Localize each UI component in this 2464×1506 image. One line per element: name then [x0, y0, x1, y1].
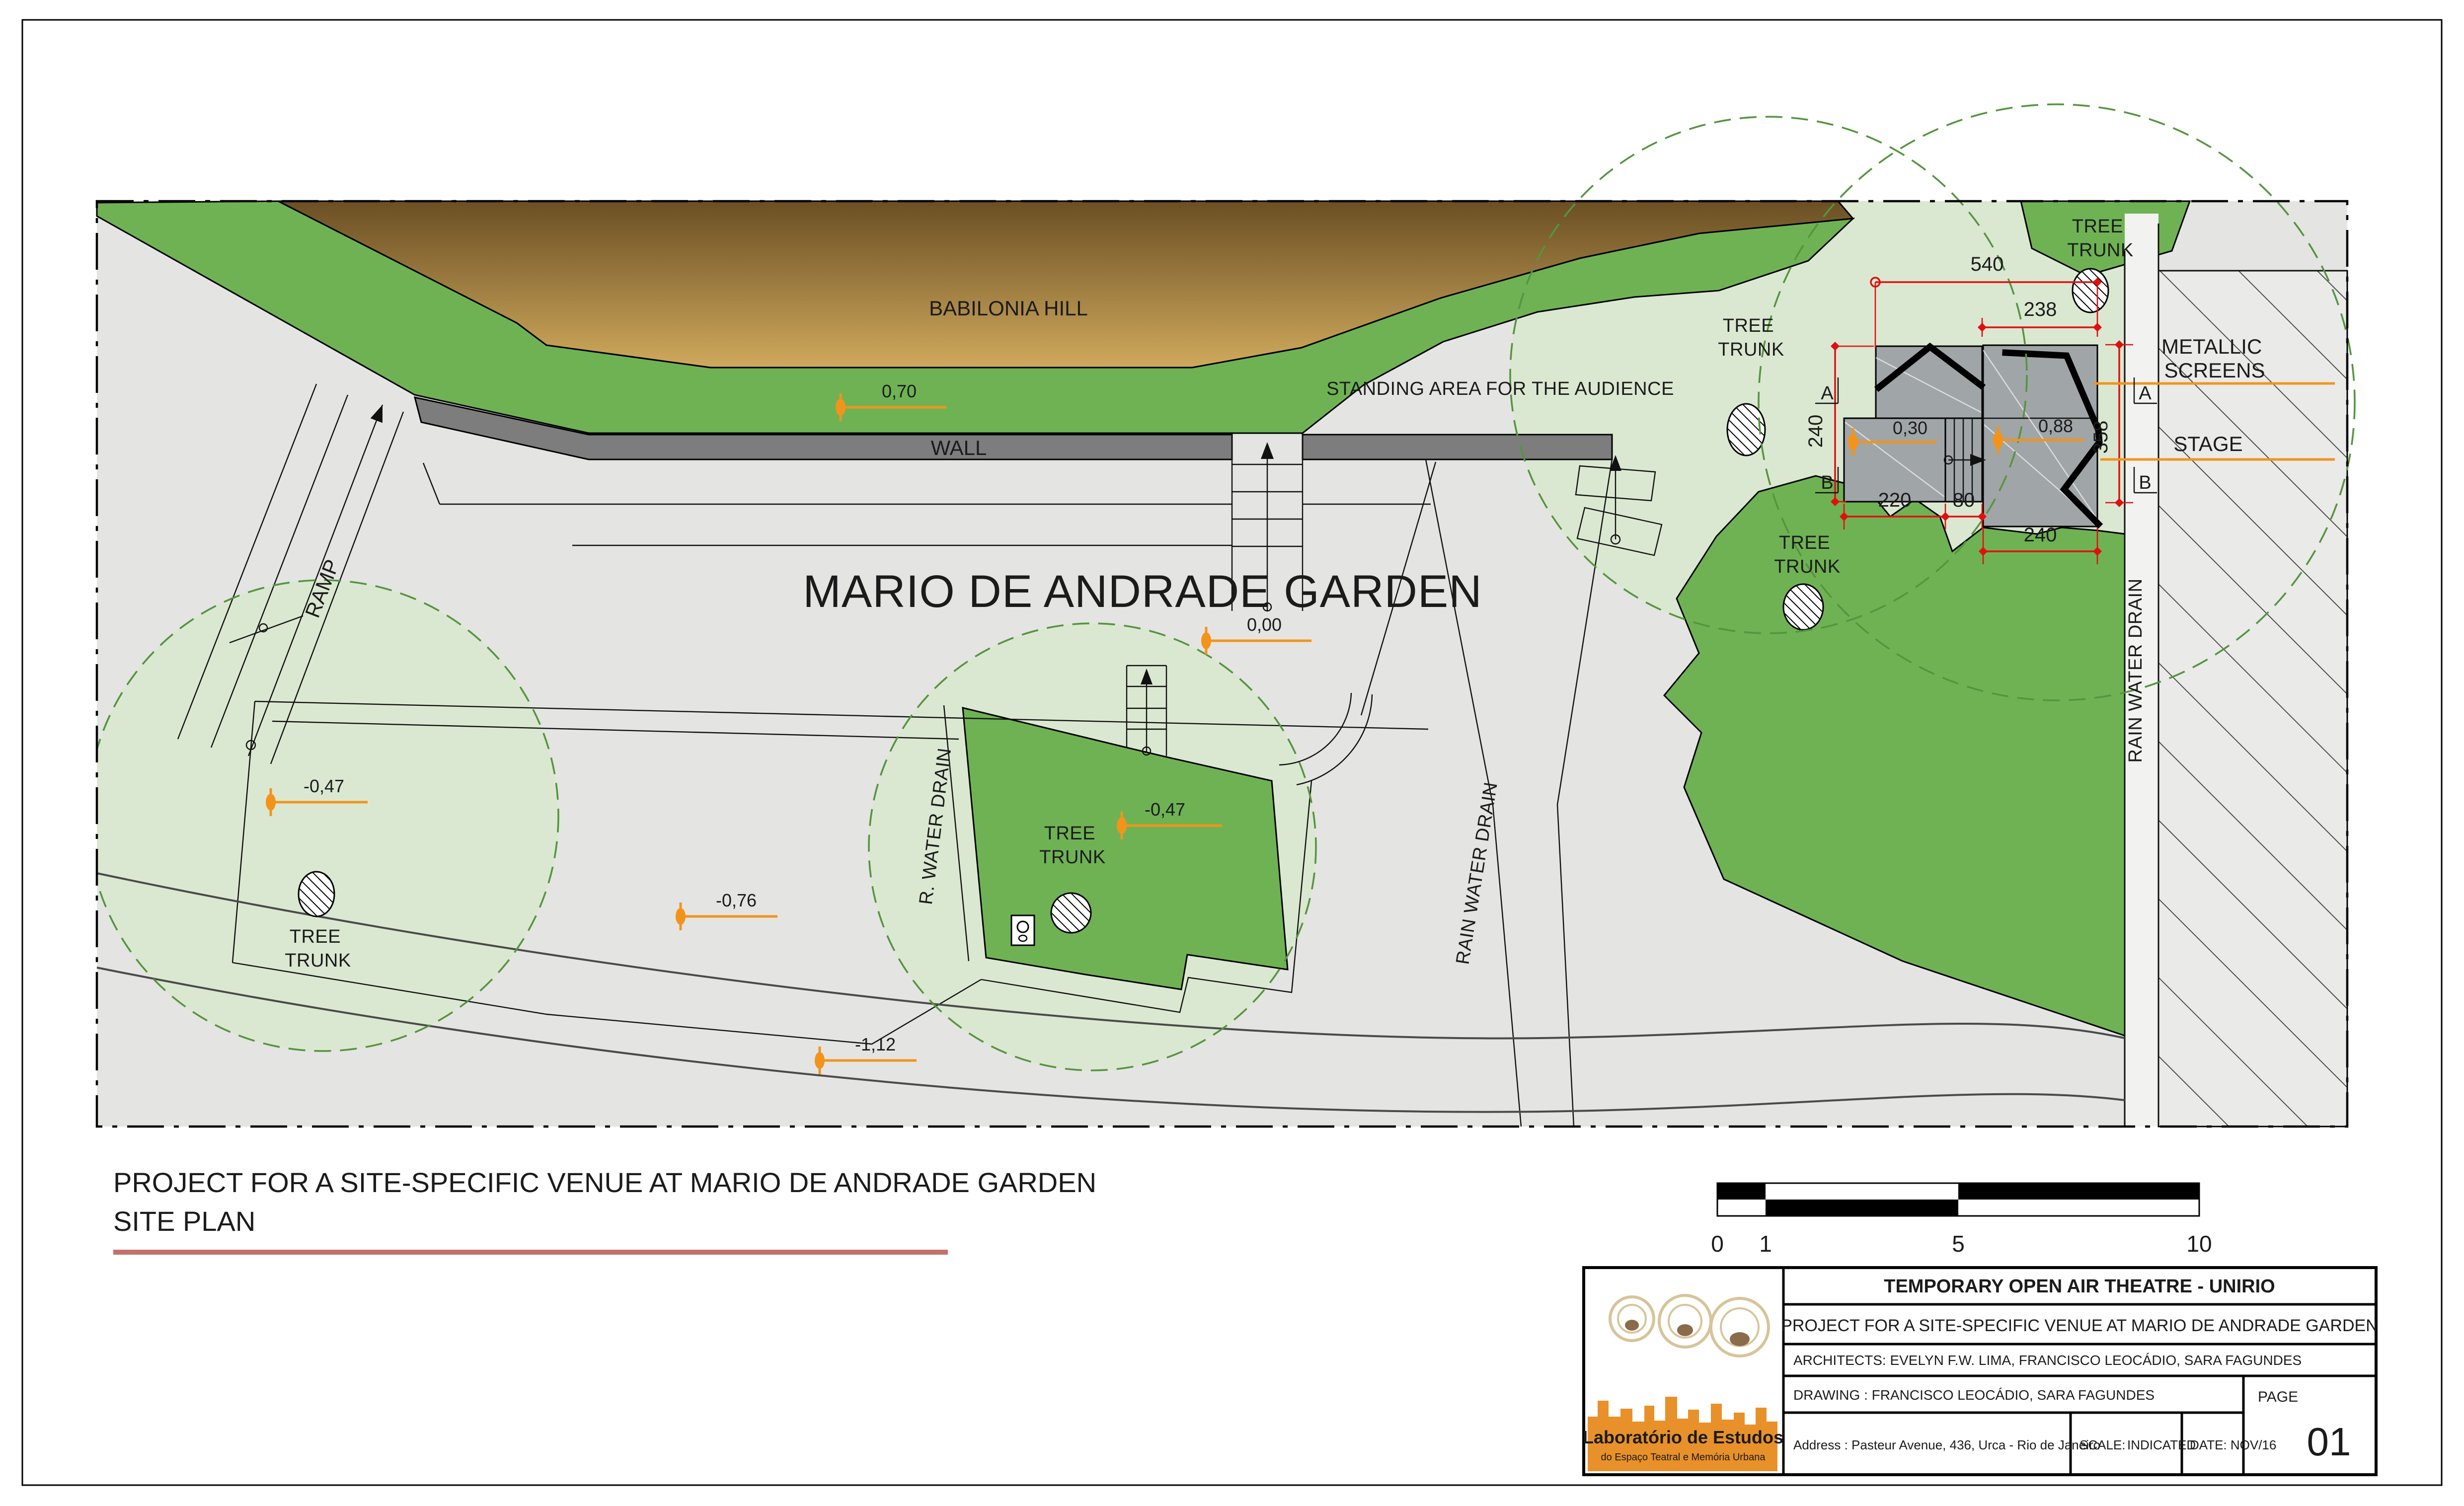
elev-030: 0,30	[1893, 418, 1927, 438]
tb-date: DATE: NOV/16	[2190, 1437, 2276, 1452]
sheet-title: PROJECT FOR A SITE-SPECIFIC VENUE AT MAR…	[113, 1167, 1096, 1198]
wall-strip-right	[1303, 435, 1612, 459]
title-block: Laboratório de Estudos do Espaço Teatral…	[1583, 1268, 2378, 1475]
rain-water-drain-right-label: RAIN WATER DRAIN	[2125, 578, 2146, 762]
tb-scale-value: INDICATED	[2127, 1437, 2196, 1452]
garden-title: MARIO DE ANDRADE GARDEN	[803, 566, 1482, 617]
section-b-right: B	[2139, 472, 2151, 493]
elev-088: 0,88	[2038, 416, 2073, 436]
tb-subject: PROJECT FOR A SITE-SPECIFIC VENUE AT MAR…	[1781, 1316, 2378, 1335]
dim-240-bottom: 240	[2024, 524, 2057, 546]
elev-112: -1,12	[855, 1034, 896, 1054]
tb-drawing: DRAWING : FRANCISCO LEOCÁDIO, SARA FAGUN…	[1793, 1387, 2155, 1403]
metallic-screens-label: METALLIC SCREENS	[2161, 335, 2268, 382]
tb-address: Address : Pasteur Avenue, 436, Urca - Ri…	[1793, 1437, 2100, 1452]
dim-80: 80	[1953, 489, 1975, 511]
scale-tick-1: 1	[1759, 1231, 1772, 1257]
elev-070: 0,70	[882, 381, 917, 401]
elev-047-center: -0,47	[1145, 799, 1185, 820]
dim-540: 540	[1971, 253, 2004, 275]
stage-label: STAGE	[2173, 432, 2242, 455]
section-a-right: A	[2139, 383, 2152, 404]
babilonia-hill-label: BABILONIA HILL	[929, 297, 1088, 320]
scale-tick-0: 0	[1711, 1231, 1724, 1257]
section-a-left: A	[1821, 383, 1834, 404]
logo-line2: do Espaço Teatral e Memória Urbana	[1601, 1452, 1766, 1463]
tb-page-label: PAGE	[2258, 1389, 2298, 1405]
tb-project: TEMPORARY OPEN AIR THEATRE - UNIRIO	[1884, 1276, 2275, 1297]
title-underline	[113, 1250, 948, 1255]
site-plan-drawing: BABILONIA HILL STANDING AREA FOR THE AUD…	[0, 0, 2464, 1506]
sheet-subtitle: SITE PLAN	[113, 1205, 255, 1237]
standing-area-label: STANDING AREA FOR THE AUDIENCE	[1326, 378, 1674, 399]
tb-scale-label: SCALE:	[2079, 1437, 2126, 1452]
scale-tick-5: 5	[1952, 1231, 1965, 1257]
logo-line1: Laboratório de Estudos	[1583, 1427, 1783, 1447]
scale-tick-10: 10	[2186, 1231, 2212, 1257]
tb-page-number: 01	[2307, 1420, 2351, 1464]
upper-left-platform	[1876, 346, 1982, 418]
hatched-area	[2158, 271, 2347, 1127]
tb-architects: ARCHITECTS: EVELYN F.W. LIMA, FRANCISCO …	[1793, 1353, 2302, 1368]
elev-047-left: -0,47	[304, 776, 344, 796]
wall-label: WALL	[931, 436, 987, 459]
dim-220: 220	[1878, 489, 1912, 511]
elev-076: -0,76	[716, 890, 757, 910]
section-b-left: B	[1821, 472, 1833, 493]
bed-icon	[1011, 915, 1034, 945]
dim-358: 358	[2090, 421, 2112, 454]
dim-238: 238	[2024, 299, 2057, 320]
dim-240-left: 240	[1805, 415, 1827, 448]
sheet: BABILONIA HILL STANDING AREA FOR THE AUD…	[0, 0, 2464, 1506]
elev-000: 0,00	[1247, 614, 1282, 635]
